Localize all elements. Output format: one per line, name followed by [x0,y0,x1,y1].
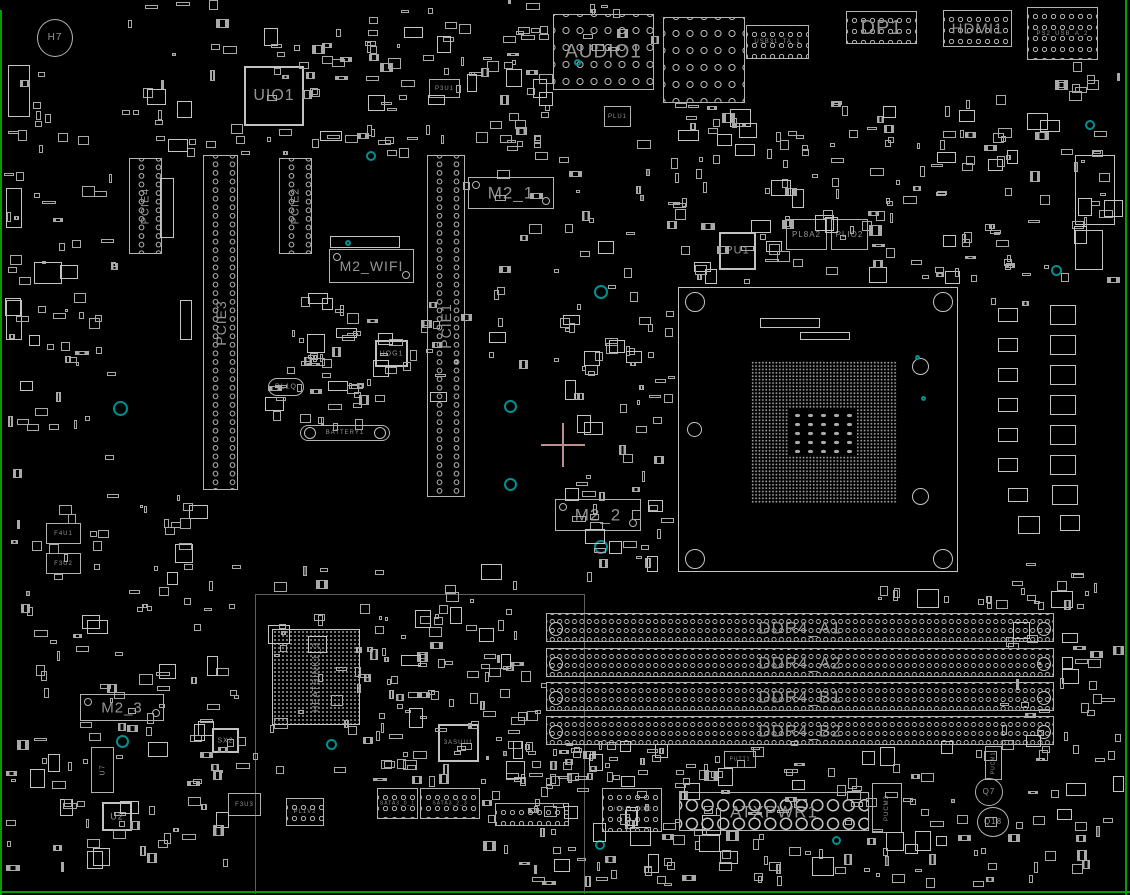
component-outline [585,365,598,374]
component-outline [630,292,638,302]
component-outline [17,419,29,426]
component-outline [1094,583,1097,592]
component-outline [27,424,40,431]
component-outline [741,246,754,251]
component-outline [26,591,30,596]
component-outline [893,764,900,774]
component-outline [793,259,803,267]
component-outline [832,178,839,187]
component-outline [387,108,397,112]
component-outline [960,130,964,138]
component-outline [559,157,570,164]
component-outline [529,773,543,776]
component-outline [917,143,920,148]
component-outline [142,604,148,608]
component-outline [593,504,597,514]
component-outline [191,677,197,683]
component-outline [359,395,369,405]
component-outline [796,135,804,140]
component-outline [511,717,525,725]
component-outline [85,416,90,421]
component-outline [177,495,181,501]
ddr4_b1[interactable]: DDR4_B1 [546,682,1054,711]
component-outline [936,273,944,277]
component-outline [489,668,501,677]
component-outline [645,804,649,811]
component-outline [52,781,65,789]
component-outline [499,266,511,273]
component-outline [389,734,403,740]
component-outline [516,31,524,35]
sata3_2_3[interactable]: SATA3_2_3 [420,788,480,819]
component-outline [921,809,929,816]
component-outline [626,351,642,363]
component-outline [583,34,592,40]
component-outline [488,815,495,823]
pcie4[interactable]: PCIE4 [129,158,162,254]
component-outline [74,420,77,429]
component-outline [876,211,885,221]
component-outline [675,103,687,108]
component-outline [274,68,280,75]
component-outline [753,839,759,850]
component-outline [699,157,703,162]
component-outline [498,318,503,326]
component-outline [577,858,586,862]
f3u3[interactable]: F3U3 [228,793,261,816]
component-outline [302,90,312,99]
component-outline [639,385,644,390]
component-outline [160,178,174,238]
socket-mount-hole [912,488,929,505]
component-outline [20,80,30,87]
component-outline [782,220,795,229]
component-outline [1005,188,1013,196]
component-outline [794,799,807,808]
component-outline [576,190,580,193]
component-outline [582,491,596,497]
component-outline [769,862,781,871]
component-outline [357,133,369,139]
component-outline [158,110,161,119]
component-outline [608,285,616,289]
component-outline [116,755,124,758]
component-outline [592,44,604,51]
component-outline [292,330,296,336]
component-outline [35,121,43,127]
component-outline [988,863,998,870]
component-outline [486,756,489,760]
component-outline [94,564,101,570]
component-outline [1016,822,1023,830]
component-outline [429,627,441,637]
component-outline [716,808,721,816]
component-outline [842,106,848,116]
component-outline [482,800,492,806]
component-outline [646,169,651,176]
component-outline [450,607,462,624]
component-outline [958,835,972,841]
component-outline [118,723,126,731]
component-outline [213,825,223,835]
component-outline [636,186,641,194]
ddr4_a1-label: DDR4_A1 [758,619,842,636]
component-outline [1050,335,1076,355]
component-outline [1064,732,1068,740]
component-outline [565,488,579,501]
pcie3-label: PCIE3 [214,300,228,345]
component-outline [180,518,191,528]
component-outline [479,628,494,642]
component-outline [1035,132,1049,141]
component-outline [1108,751,1116,760]
component-outline [678,130,700,142]
sata3_0_1[interactable]: SATA3_0_1 [377,788,418,819]
component-outline [419,654,427,659]
component-outline [188,797,201,806]
component-outline [5,298,21,316]
component-outline [47,344,54,350]
component-outline [812,857,834,876]
component-outline [504,62,514,69]
component-outline [382,648,386,656]
component-outline [207,704,220,709]
component-outline [496,737,502,740]
mounting-hole [504,478,517,491]
component-outline [565,224,572,233]
component-outline [540,828,545,837]
component-outline [589,766,597,772]
component-outline [786,769,793,776]
component-outline [607,772,613,782]
component-outline [480,701,485,710]
component-outline [1062,669,1080,684]
component-outline [223,46,237,54]
component-outline [179,543,192,550]
component-outline [503,666,506,670]
component-outline [591,9,597,14]
component-outline [708,128,717,134]
component-outline [514,631,518,640]
component-outline [381,723,384,733]
component-outline [1022,301,1029,306]
component-outline [777,876,782,886]
component-outline [844,854,852,865]
component-outline [986,877,994,882]
component-outline [930,821,943,827]
component-outline [110,698,113,703]
component-outline [998,398,1018,412]
component-outline [434,617,443,624]
component-outline [828,768,835,776]
dp1[interactable]: DP1 [846,11,917,44]
pl1v2-label: PL1V2 [293,809,316,815]
component-outline [310,353,317,360]
component-outline [890,213,893,223]
component-outline [684,783,700,800]
component-outline [620,404,627,413]
component-outline [8,416,13,427]
component-outline [760,318,820,328]
component-outline [489,352,494,358]
component-outline [6,188,22,228]
component-outline [11,540,17,544]
component-outline [454,360,458,365]
component-outline [886,832,904,851]
component-outline [508,730,520,734]
component-outline [312,45,325,54]
component-outline [437,36,451,53]
component-outline [93,848,110,867]
hdmi1[interactable]: HDMI1 [943,10,1012,47]
component-outline [335,309,343,313]
component-outline [1087,80,1099,89]
component-outline [754,873,763,881]
component-outline [267,137,271,142]
component-outline [765,188,770,195]
component-outline [737,760,745,767]
component-outline [1074,162,1078,172]
component-outline [675,209,686,220]
component-outline [791,741,798,747]
component-outline [1075,87,1087,93]
component-outline [668,202,681,206]
component-outline [520,235,528,241]
component-outline [211,44,220,50]
component-outline [443,764,449,775]
component-outline [984,145,998,151]
component-outline [626,232,635,236]
component-outline [974,850,978,856]
component-outline [951,799,955,803]
component-outline [268,386,282,391]
component-outline [79,312,84,319]
component-outline [1115,734,1121,743]
component-outline [769,244,780,255]
component-outline [935,267,944,273]
component-outline [114,692,125,698]
component-outline [318,674,323,682]
component-outline [303,566,306,576]
audio1[interactable]: AUDIO1 [553,14,654,90]
component-outline [748,812,762,815]
pcie2[interactable]: PCIE2 [279,158,312,254]
component-outline [1061,149,1073,154]
component-outline [387,679,391,685]
mounting-hole [366,151,376,161]
component-outline [998,128,1012,138]
pcie3[interactable]: PCIE3 [203,155,238,490]
component-outline [527,88,535,95]
component-outline [1104,200,1123,218]
component-outline [519,862,530,865]
component-outline [336,29,341,37]
component-outline [34,630,48,638]
component-outline [438,659,446,668]
component-outline [509,113,519,122]
ddr4_a2[interactable]: DDR4_A2 [546,648,1054,677]
component-outline [149,806,155,814]
component-outline [19,277,31,285]
mounting-hole [504,400,517,413]
component-outline [316,580,328,589]
m2_wifi[interactable]: M2_WIFI [329,249,414,283]
component-outline [1040,195,1049,205]
component-outline [1039,709,1049,713]
component-outline [432,342,442,348]
pl1v2[interactable]: PL1V2 [286,798,324,826]
component-outline [164,519,169,527]
component-outline [780,140,789,150]
component-outline [128,708,135,714]
component-outline [884,125,894,133]
crosshair-cursor-v [562,423,564,467]
component-outline [369,17,378,24]
component-outline [764,856,768,865]
component-outline [699,835,720,853]
component-outline [620,814,630,825]
component-outline [369,54,378,61]
component-outline [647,749,659,753]
component-outline [184,564,192,569]
component-outline [68,762,72,771]
component-outline [553,749,557,756]
component-outline [401,10,410,13]
component-outline [885,140,891,148]
component-outline [1013,622,1031,639]
component-outline [107,372,116,376]
component-outline [717,246,729,254]
component-outline [830,143,835,146]
component-outline [476,132,488,143]
component-outline [38,72,44,77]
component-outline [638,770,648,774]
component-outline [513,581,517,589]
component-outline [431,691,439,700]
ps2_usb_a_2[interactable]: PS2_USB_A_2 [1027,7,1098,60]
component-outline [210,70,214,81]
component-outline [915,831,931,851]
component-outline [287,367,295,373]
component-outline [575,776,587,780]
battery1[interactable]: BATTERY1 [300,425,390,441]
component-outline [306,72,315,79]
component-outline [144,506,147,513]
usb31_ta_1-label: USB31_TA_1 [754,39,800,45]
pcie2-label: PCIE2 [290,188,301,225]
component-outline [534,143,541,148]
component-outline [937,152,956,163]
component-outline [955,268,958,276]
component-outline [1088,659,1100,668]
pucm3[interactable]: PUCM3 [872,783,902,833]
component-outline [568,774,572,783]
component-outline [866,798,877,807]
component-outline [399,95,407,99]
component-outline [471,721,479,728]
component-outline [554,358,559,363]
component-outline [639,317,651,324]
ddr4_a1[interactable]: DDR4_A1 [546,613,1054,642]
cpu-socket[interactable] [678,287,958,572]
component-outline [1077,850,1087,861]
component-outline [507,53,519,56]
component-outline [95,315,102,322]
component-outline [277,52,285,58]
component-outline [347,333,357,336]
component-outline [429,776,434,787]
component-outline [299,338,304,343]
component-outline [172,53,177,56]
component-outline [529,224,542,234]
pcie4-label: PCIE4 [140,188,151,225]
component-outline [911,774,920,779]
component-outline [17,740,29,750]
component-outline [959,110,975,121]
component-outline [483,841,496,852]
component-outline [707,106,717,110]
component-outline [637,791,646,798]
component-outline [751,220,771,233]
mounting-hole [921,396,926,401]
component-outline [78,136,89,145]
component-outline [457,746,466,750]
component-outline [1061,273,1069,283]
h7[interactable]: H7 [37,19,73,57]
component-outline [274,718,288,729]
component-outline [694,829,707,836]
component-outline [140,846,146,856]
component-outline [1033,816,1046,825]
component-outline [467,74,477,92]
component-outline [771,180,791,196]
component-outline [584,351,600,366]
component-outline [336,667,348,671]
component-outline [812,174,818,178]
component-outline [1075,822,1087,831]
component-outline [599,741,602,750]
component-outline [697,274,702,281]
q7[interactable]: Q7 [975,778,1003,806]
component-outline [1050,425,1076,445]
component-outline [886,198,890,205]
component-outline [82,186,96,197]
component-outline [530,193,543,199]
component-outline [535,710,541,714]
component-outline [753,747,764,756]
component-outline [332,59,345,67]
u7[interactable]: U7 [91,747,114,793]
plu1[interactable]: PLU1 [604,106,631,127]
component-outline [864,868,870,872]
f4u1[interactable]: F4U1 [46,523,81,544]
component-outline [507,140,516,144]
component-outline [1045,851,1056,861]
component-outline [168,139,188,153]
component-outline [379,616,382,620]
component-outline [1026,563,1036,566]
usb31_ta_1[interactable]: USB31_TA_1 [746,25,809,59]
component-outline [200,719,213,724]
component-outline [384,761,395,768]
component-outline [506,761,525,780]
component-outline [44,688,49,699]
component-outline [599,559,608,568]
component-outline [869,267,887,283]
component-outline [387,150,397,156]
component-outline [847,791,860,801]
component-outline [893,590,897,601]
